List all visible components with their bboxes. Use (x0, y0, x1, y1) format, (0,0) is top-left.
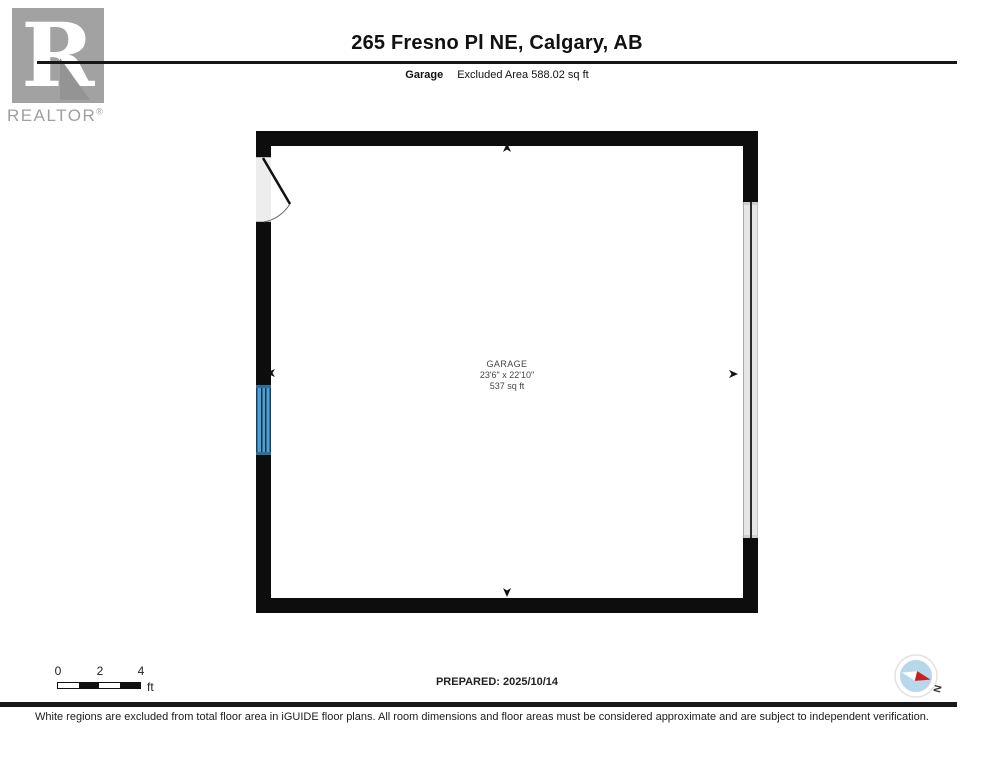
wall-west-upper (256, 131, 271, 157)
compass: N (892, 652, 944, 704)
floor-name: Garage (405, 69, 443, 81)
garage-door-east (743, 202, 758, 538)
footer-divider (0, 702, 957, 707)
room-dimensions: 23'6" x 22'10" (427, 370, 587, 381)
wall-east-lower (743, 538, 758, 613)
realtor-wordmark: REALTOR® (7, 106, 103, 126)
realtor-logo: R (12, 8, 104, 103)
prepared-date: PREPARED: 2025/10/14 (0, 676, 994, 688)
room-name: GARAGE (427, 359, 587, 370)
realtor-logo-mark: R (12, 8, 104, 103)
south-arrow-icon (503, 588, 511, 597)
wall-north (256, 131, 758, 146)
wall-west-lower (256, 455, 271, 613)
excluded-area-text: Excluded Area 588.02 sq ft (457, 69, 588, 81)
room-label: GARAGE 23'6" x 22'10" 537 sq ft (427, 359, 587, 392)
door-opening (256, 157, 271, 222)
compass-icon (892, 652, 944, 704)
disclaimer-text: White regions are excluded from total fl… (35, 711, 965, 723)
floorplan-page: R REALTOR® 265 Fresno Pl NE, Calgary, AB… (0, 0, 994, 768)
room-area: 537 sq ft (427, 381, 587, 392)
wall-east-upper (743, 131, 758, 202)
floor-subtitle: Garage Excluded Area 588.02 sq ft (0, 69, 994, 81)
east-arrow-icon (729, 370, 738, 378)
floorplan-diagram: GARAGE 23'6" x 22'10" 537 sq ft (256, 131, 758, 613)
wall-south (256, 598, 758, 613)
title-divider (37, 61, 957, 64)
window-west (256, 385, 271, 455)
svg-text:R: R (21, 8, 95, 103)
page-title: 265 Fresno Pl NE, Calgary, AB (0, 32, 994, 55)
wall-west-middle (256, 222, 271, 385)
